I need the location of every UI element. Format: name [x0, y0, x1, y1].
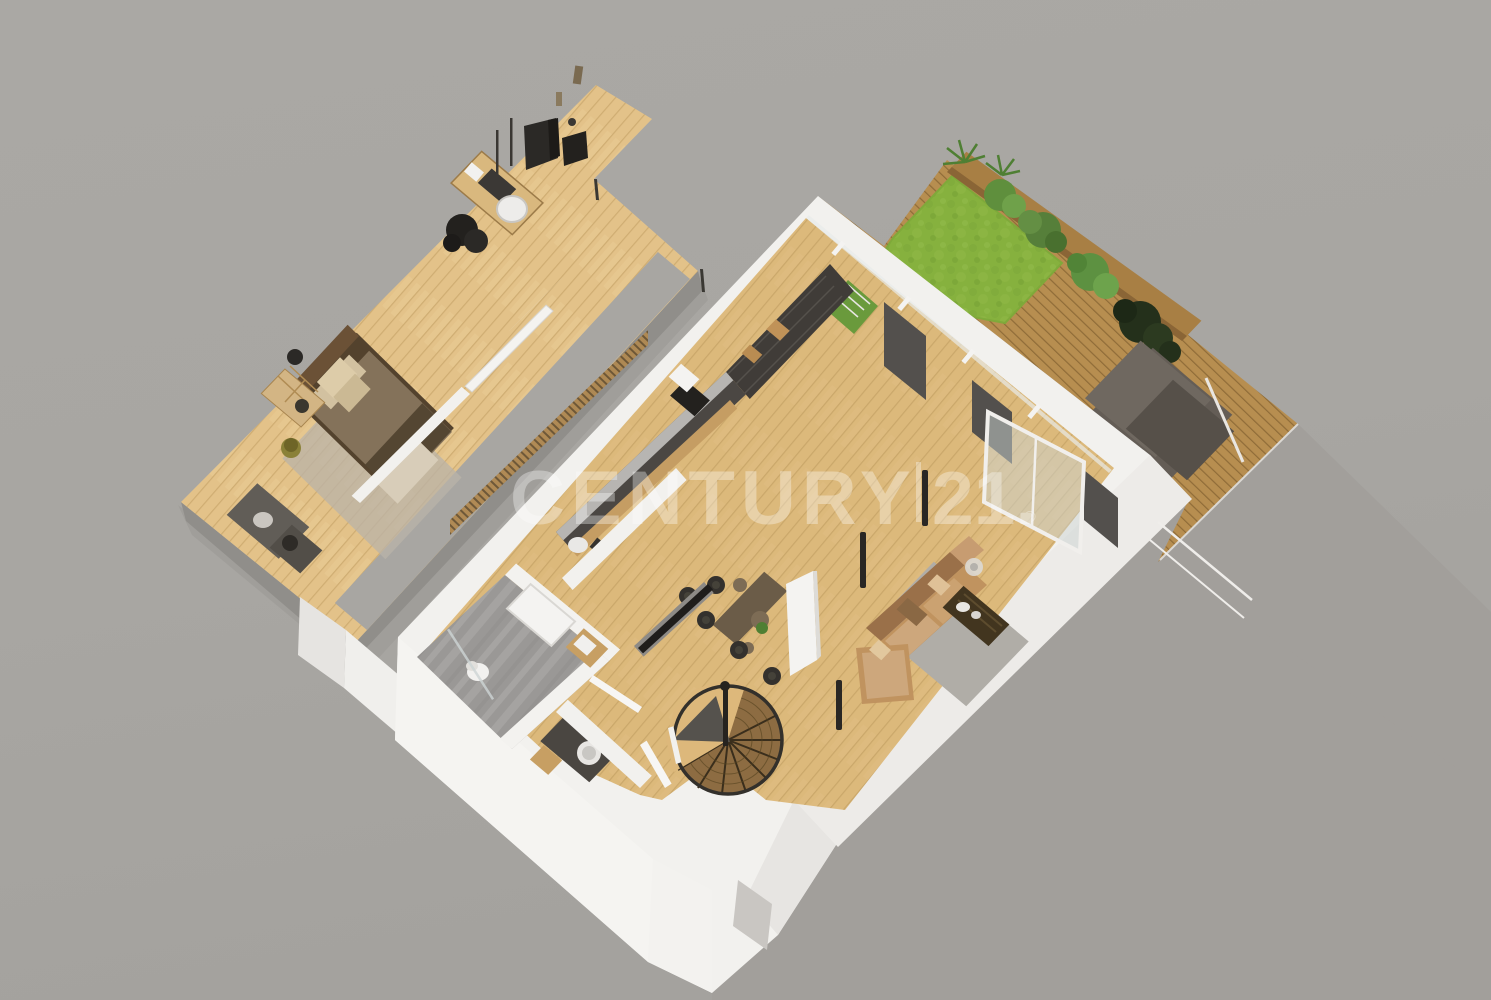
svg-text:21.: 21.: [932, 456, 1036, 540]
svg-text:®: ®: [1024, 509, 1036, 526]
svg-text:CENTURY: CENTURY: [510, 456, 917, 541]
